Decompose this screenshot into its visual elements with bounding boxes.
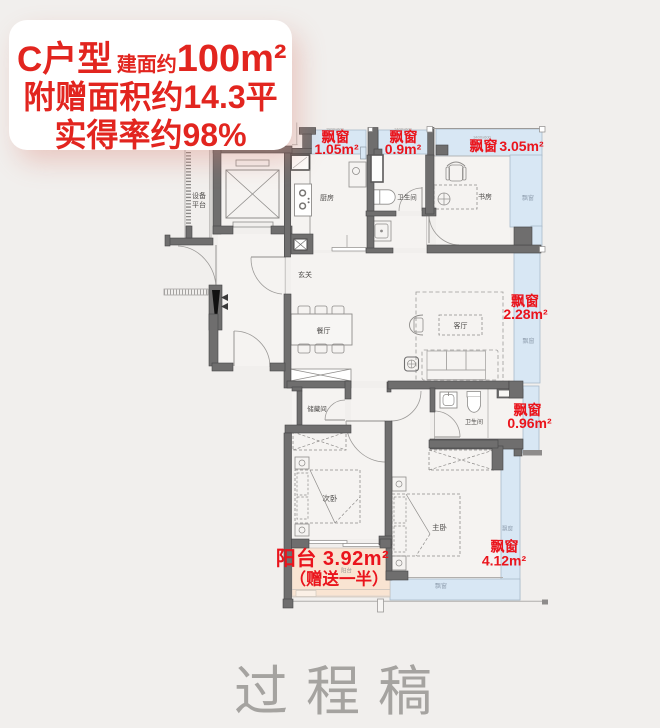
svg-text:厨房: 厨房 (320, 193, 334, 202)
svg-text:飘窗: 飘窗 (435, 582, 447, 590)
svg-text:玄关: 玄关 (298, 270, 312, 279)
svg-text:飘窗: 飘窗 (522, 337, 534, 345)
svg-text:（赠送一半）: （赠送一半） (290, 569, 389, 589)
svg-text:储藏间: 储藏间 (307, 404, 327, 413)
svg-text:次卧: 次卧 (323, 493, 338, 503)
svg-text:飘窗: 飘窗 (522, 194, 534, 202)
svg-text:2.28m²: 2.28m² (503, 306, 548, 322)
svg-text:4.12m²: 4.12m² (482, 553, 527, 569)
svg-text:书房: 书房 (478, 192, 492, 201)
svg-text:设备: 设备 (192, 191, 206, 200)
svg-text:1.05m²: 1.05m² (314, 141, 359, 157)
svg-text:主卧: 主卧 (432, 522, 447, 532)
svg-text:客厅: 客厅 (454, 321, 468, 330)
svg-text:飘窗: 飘窗 (470, 138, 498, 154)
svg-text:卫生间: 卫生间 (465, 418, 483, 426)
svg-text:卫生间: 卫生间 (397, 193, 417, 202)
svg-text:0.9m²: 0.9m² (385, 141, 422, 157)
svg-text:平台: 平台 (192, 200, 206, 209)
svg-text:餐厅: 餐厅 (317, 326, 331, 335)
svg-text:阳台 3.92m²: 阳台 3.92m² (276, 546, 389, 570)
svg-text:飘窗: 飘窗 (502, 525, 514, 533)
svg-text:0.96m²: 0.96m² (507, 415, 552, 431)
svg-text:3.05m²: 3.05m² (499, 138, 544, 154)
